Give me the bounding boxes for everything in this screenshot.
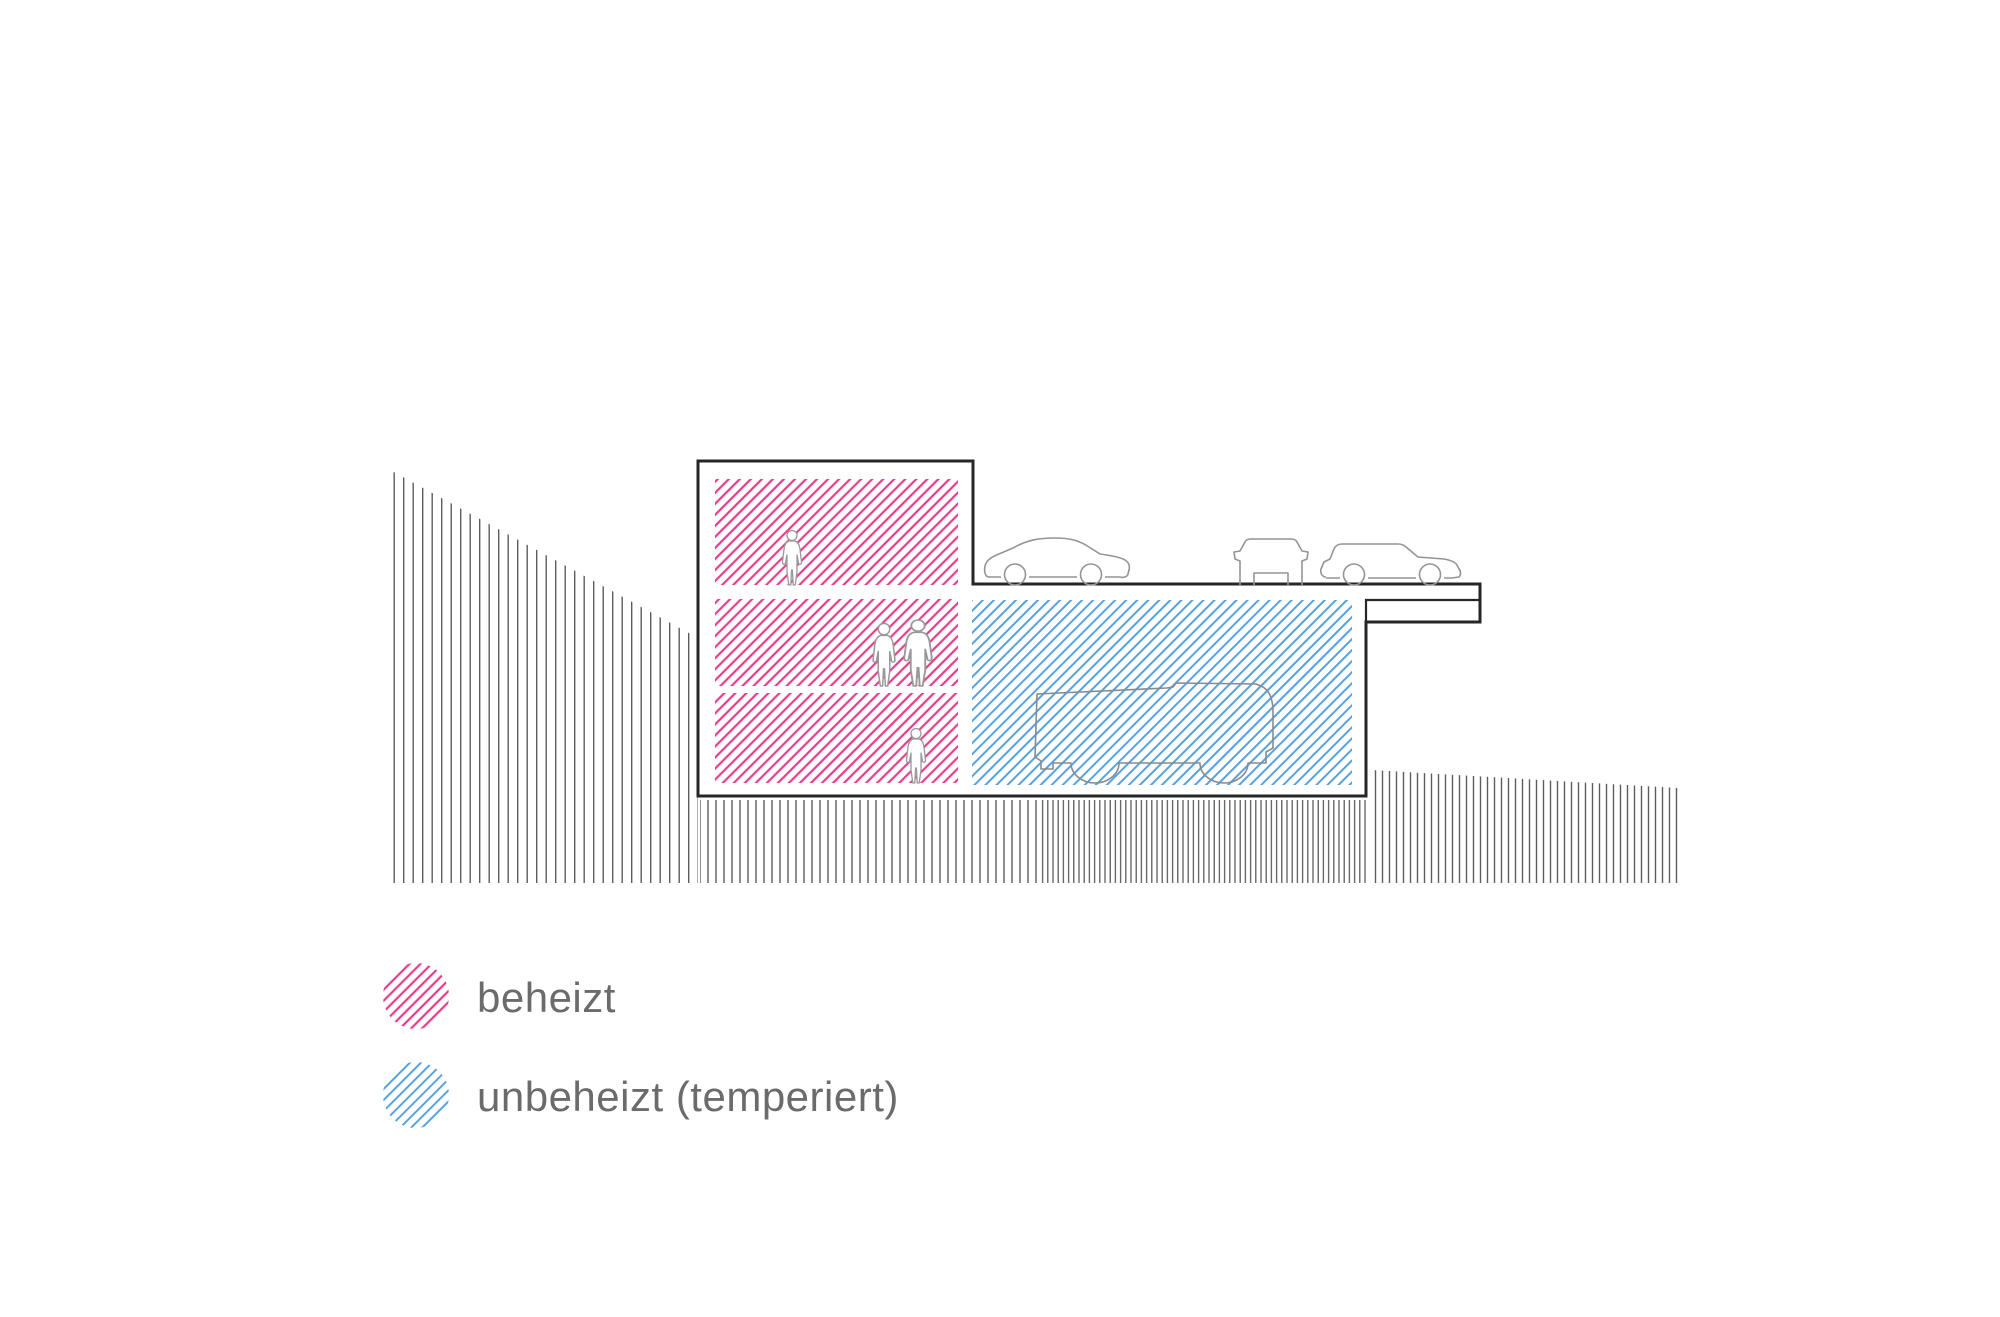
deck-vehicles (985, 538, 1461, 585)
legend-swatch-heated (383, 963, 449, 1029)
zone-heated-upper-floor (715, 479, 958, 585)
section-diagram-canvas: beheizt unbeheizt (temperiert) (0, 0, 2000, 1317)
car-suv-side (1321, 544, 1461, 585)
car-sedan-side (985, 538, 1130, 585)
legend-swatch-unheated (383, 1062, 449, 1128)
terrain-ground-right (1372, 770, 1678, 883)
legend-label-unheated: unbeheizt (temperiert) (477, 1073, 899, 1120)
terrain-hillside-left (390, 470, 698, 883)
zones (715, 479, 1352, 785)
deck-slab-edge-detail (1366, 600, 1480, 622)
section-diagram-page: beheizt unbeheizt (temperiert) (0, 0, 2000, 1317)
legend-label-heated: beheizt (477, 974, 616, 1021)
terrain-under-building-left (700, 800, 1040, 883)
terrain-under-building-right (1040, 800, 1366, 883)
car-front-view (1234, 539, 1308, 585)
legend: beheizt unbeheizt (temperiert) (383, 963, 899, 1128)
zone-unheated-parking (972, 600, 1352, 785)
